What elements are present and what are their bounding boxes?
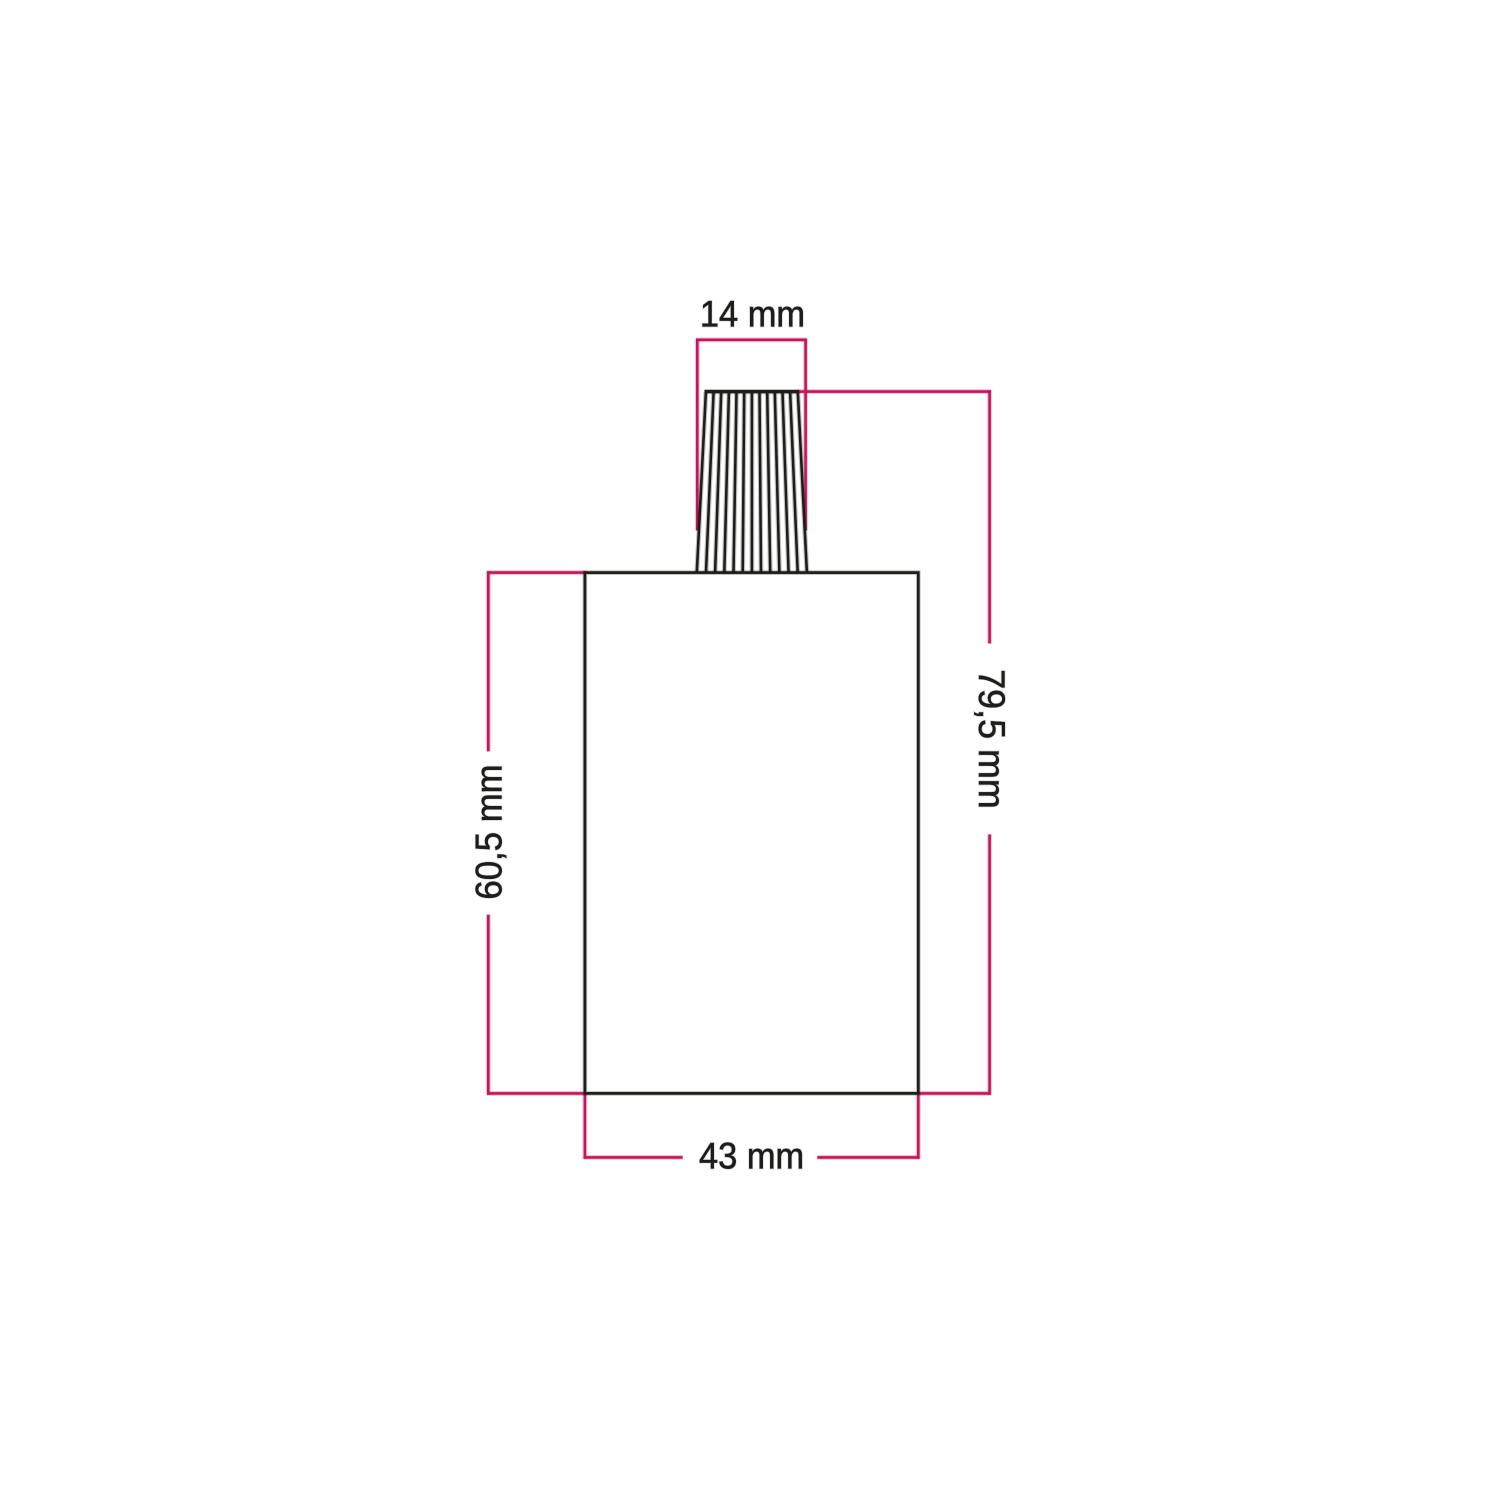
svg-text:14 mm: 14 mm: [700, 293, 805, 334]
svg-text:43 mm: 43 mm: [699, 1136, 804, 1177]
svg-text:60,5 mm: 60,5 mm: [469, 764, 510, 899]
svg-text:79,5 mm: 79,5 mm: [971, 669, 1013, 809]
